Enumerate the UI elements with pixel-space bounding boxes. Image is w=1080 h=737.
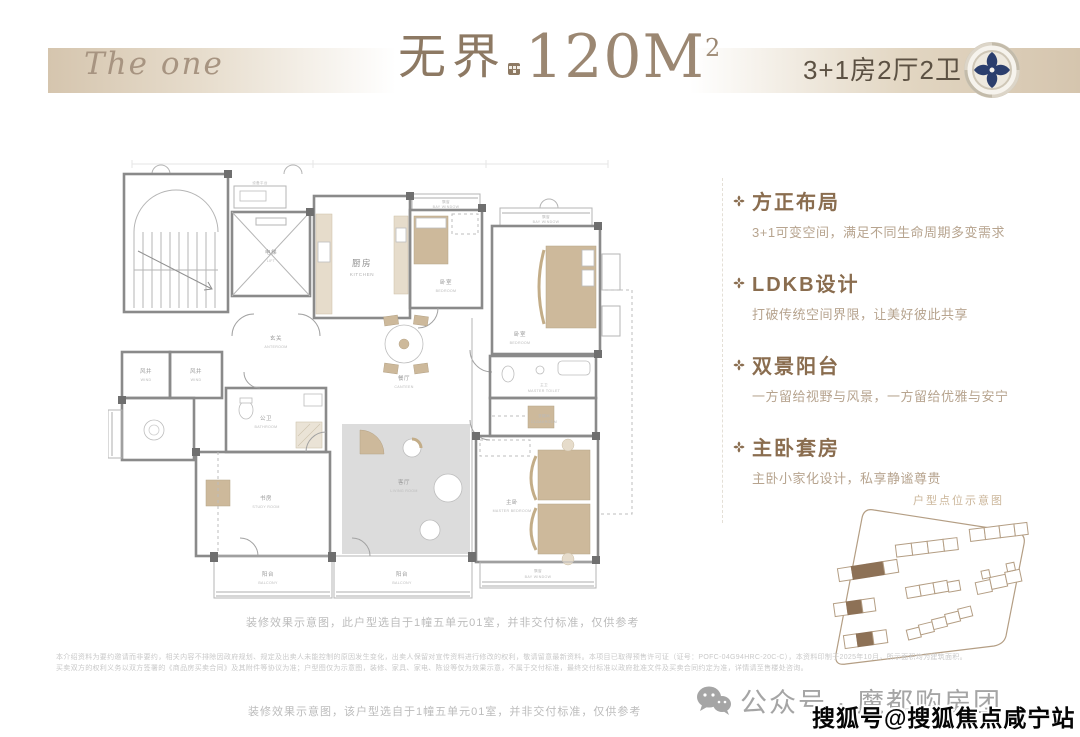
svg-text:KITCHEN: KITCHEN (350, 272, 374, 277)
stairwell (124, 174, 228, 312)
dining-room: 餐厅 CANTEEN (383, 315, 428, 389)
svg-text:设备平台: 设备平台 (252, 180, 268, 185)
master-toilet: 主卫 MASTER TOILET (490, 356, 596, 398)
flower-bullet-icon (733, 441, 745, 453)
unit-spec: 3+1房2厅2卫 (803, 48, 962, 93)
wind-shafts: 风井 WIND 风井 WIND (122, 352, 222, 398)
svg-text:BEDROOM: BEDROOM (510, 341, 531, 345)
svg-text:WIND: WIND (141, 378, 152, 382)
disclaimer: 本介绍资料为要约邀请而非要约，相关内容不排除因政府规划、规定及出卖人未能控制的原… (56, 652, 1034, 674)
site-plan-caption: 户型点位示意图 (913, 492, 1004, 508)
svg-text:MASTER TOILET: MASTER TOILET (528, 389, 561, 393)
feature-desc: 3+1可变空间，满足不同生命周期多变需求 (752, 222, 1063, 241)
svg-text:书房: 书房 (260, 494, 272, 502)
seal-icon (508, 63, 520, 75)
feature-item: 双景阳台 一方留给视野与风景，一方留给优雅与安宁 (733, 350, 1063, 405)
feature-item: LDKB设计 打破传统空间界限，让美好彼此共享 (733, 268, 1063, 323)
bedroom-middle: 飘窗 BAY WINDOW 卧室 BEDROOM (410, 194, 482, 328)
feature-desc: 打破传统空间界限，让美好彼此共享 (752, 304, 1063, 323)
svg-text:CLOAKROOM: CLOAKROOM (531, 420, 557, 424)
feature-title: 主卧套房 (752, 432, 840, 461)
feature-desc: 一方留给视野与风景，一方留给优雅与安宁 (752, 386, 1063, 405)
title-chinese: 无界 (398, 33, 506, 85)
sohu-watermark: 搜狐号@搜狐焦点咸宁站 (812, 699, 1075, 733)
svg-text:卧室: 卧室 (514, 330, 526, 338)
svg-text:厨房: 厨房 (352, 258, 372, 268)
wechat-icon (696, 685, 732, 717)
equipment-platform: 设备平台 (234, 180, 286, 208)
svg-text:LIVING ROOM: LIVING ROOM (390, 489, 417, 493)
svg-text:电梯: 电梯 (265, 248, 277, 256)
svg-text:BAY WINDOW: BAY WINDOW (533, 220, 560, 224)
svg-text:玄关: 玄关 (270, 334, 282, 342)
floor-plan: 电梯 LIFT 设备平台 厨房 KITCHEN 飘窗 BAY WINDOW 卧室… (108, 158, 668, 644)
flower-bullet-icon (733, 277, 745, 289)
svg-text:BEDROOM: BEDROOM (436, 289, 457, 293)
svg-text:飘窗: 飘窗 (442, 199, 450, 204)
svg-text:LIFT: LIFT (267, 259, 276, 263)
svg-text:阳台: 阳台 (396, 570, 408, 578)
brand-banner: The one (48, 48, 396, 93)
svg-text:风井: 风井 (190, 367, 202, 375)
disclaimer-line-2: 买卖双方的权利义务以双方签署的《商品房买卖合同》及其附件等协议为准；户型图仅为示… (56, 663, 1034, 674)
svg-text:卧室: 卧室 (440, 278, 452, 286)
area-value: 120M (525, 22, 705, 92)
svg-text:CANTEEN: CANTEEN (394, 385, 413, 389)
feature-title: LDKB设计 (752, 268, 860, 297)
utility-room (108, 398, 194, 460)
disclaimer-line-1: 本介绍资料为要约邀请而非要约，相关内容不排除因政府规划、规定及出卖人未能控制的原… (56, 652, 1034, 663)
feature-list: 方正布局 3+1可变空间，满足不同生命周期多变需求 LDKB设计 打破传统空间界… (733, 186, 1063, 514)
site-plan-sketch (788, 488, 1066, 670)
flower-bullet-icon (733, 359, 745, 371)
feature-item: 方正布局 3+1可变空间，满足不同生命周期多变需求 (733, 186, 1063, 241)
feature-title: 双景阳台 (752, 350, 840, 379)
master-bedroom: 主卧 MASTER BEDROOM (470, 420, 598, 565)
balcony-left: 阳台 BALCONY (214, 538, 332, 598)
brand-logo: The one (84, 46, 224, 82)
svg-text:主卧: 主卧 (506, 498, 518, 506)
site-plan: 户型点位示意图 (788, 488, 1066, 670)
bathroom: 公卫 BATHROOM (226, 372, 326, 452)
bottom-note: 装修效果示意图，该户型选自于1幢五单元01室，并非交付标准，仅供参考 (248, 703, 641, 719)
feature-item: 主卧套房 主卧小家化设计，私享静谧尊贵 (733, 432, 1063, 487)
svg-text:BALCONY: BALCONY (258, 581, 278, 585)
floorplan-note: 装修效果示意图，此户型选自于1幢五单元01室，并非交付标准，仅供参考 (246, 614, 639, 630)
svg-text:餐厅: 餐厅 (398, 374, 410, 382)
feature-desc: 主卧小家化设计，私享静谧尊贵 (752, 468, 1063, 487)
svg-text:主卫: 主卫 (540, 382, 548, 387)
feature-title: 方正布局 (752, 186, 840, 215)
svg-text:客厅: 客厅 (398, 478, 410, 486)
svg-text:飘窗: 飘窗 (534, 568, 542, 573)
svg-text:衣帽间: 衣帽间 (538, 413, 550, 418)
svg-text:BATHROOM: BATHROOM (255, 425, 278, 429)
divider (722, 178, 723, 523)
svg-text:BAY WINDOW: BAY WINDOW (433, 205, 460, 209)
svg-text:阳台: 阳台 (262, 570, 274, 578)
elevator: 电梯 LIFT (232, 212, 310, 296)
svg-text:ANTEROOM: ANTEROOM (264, 345, 287, 349)
study-room: 书房 STUDY ROOM (196, 432, 330, 556)
svg-text:BALCONY: BALCONY (392, 581, 412, 585)
rose-logo-icon (962, 40, 1022, 100)
flower-bullet-icon (733, 195, 745, 207)
svg-text:BAY WINDOW: BAY WINDOW (525, 575, 552, 579)
kitchen: 厨房 KITCHEN (314, 196, 410, 318)
master-bay-window: 飘窗 BAY WINDOW (480, 562, 596, 588)
svg-text:MASTER BEDROOM: MASTER BEDROOM (493, 509, 532, 513)
svg-text:飘窗: 飘窗 (542, 214, 550, 219)
svg-text:公卫: 公卫 (260, 415, 272, 422)
svg-text:风井: 风井 (140, 367, 152, 375)
anteroom: 玄关 ANTEROOM (232, 314, 320, 349)
cloakroom: 衣帽间 CLOAKROOM (490, 398, 596, 436)
svg-text:STUDY ROOM: STUDY ROOM (252, 505, 279, 509)
svg-text:WIND: WIND (191, 378, 202, 382)
page-title: 无界 120M2 (398, 30, 721, 85)
